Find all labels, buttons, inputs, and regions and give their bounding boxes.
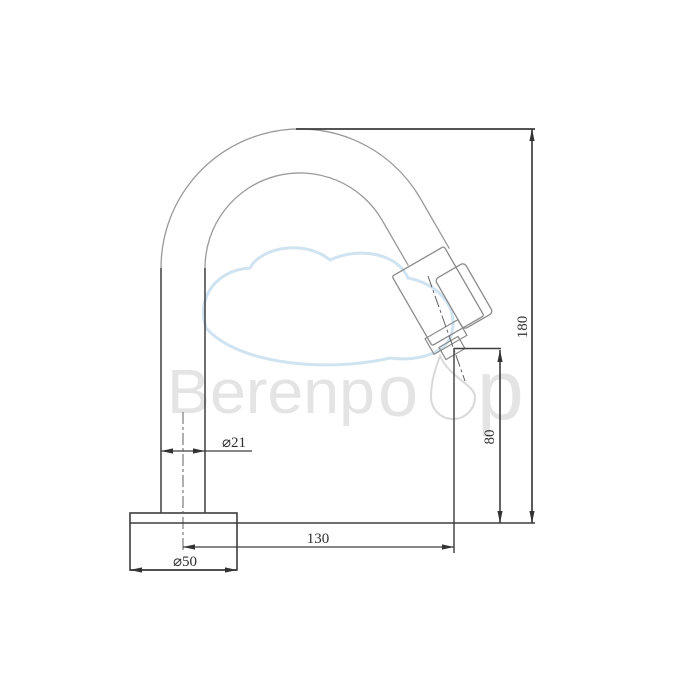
dim-label-outlet-height: 80 bbox=[482, 430, 498, 445]
drawing-page: Berenp o p bbox=[0, 0, 685, 685]
arrowhead bbox=[130, 567, 142, 572]
dim-label-total-height: 180 bbox=[515, 316, 531, 339]
arrowhead bbox=[529, 511, 534, 523]
dim-label-reach: 130 bbox=[307, 531, 330, 547]
watermark-text-berenp: Berenp bbox=[167, 358, 375, 427]
watermark-text-o: o bbox=[378, 352, 418, 432]
water-drop-icon bbox=[431, 356, 475, 419]
arrowhead bbox=[529, 129, 534, 141]
technical-drawing-canvas: Berenp o p bbox=[0, 0, 685, 685]
arrowhead bbox=[442, 544, 454, 549]
dimensions: 180 80 130 ⌀21 ⌀50 bbox=[130, 129, 535, 573]
arrowhead bbox=[193, 448, 205, 453]
dim-label-tube-diameter: ⌀21 bbox=[222, 435, 246, 451]
arrowhead bbox=[161, 448, 173, 453]
arrowhead bbox=[183, 544, 195, 549]
arrowhead bbox=[225, 567, 237, 572]
watermark: Berenp o p bbox=[167, 248, 524, 437]
cloud-icon bbox=[203, 248, 453, 365]
arrowhead bbox=[497, 511, 502, 523]
dim-label-base-diameter: ⌀50 bbox=[173, 554, 197, 570]
spout-tube-outer-wall bbox=[420, 199, 449, 249]
